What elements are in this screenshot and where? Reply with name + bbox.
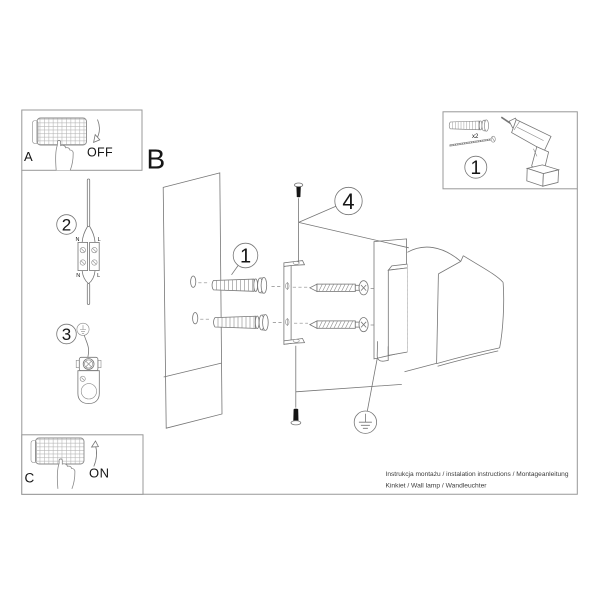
wire-label-l-top: L (98, 237, 101, 243)
switch-off-label: OFF (87, 146, 113, 160)
mounting-bracket (284, 261, 305, 345)
plug-quantity-label: x2 (472, 134, 479, 140)
panel-switch-off: OFF A (22, 110, 142, 170)
mounting-screw-icon (310, 318, 368, 332)
wire-label-n-top: N (76, 237, 80, 243)
wiring-step: 2 N L N L (57, 179, 101, 305)
wall-hole (191, 276, 196, 287)
tools-panel: x2 1 (443, 112, 577, 189)
diagram-canvas: OFF A ON C B 2 (0, 0, 600, 600)
mounting-screw-icon (310, 281, 368, 295)
power-cable-icon (82, 179, 95, 305)
instruction-sheet: OFF A ON C B 2 (0, 0, 600, 600)
wall-panel (163, 173, 222, 428)
ground-wire (84, 335, 88, 357)
grounding-step: 3 (57, 323, 101, 403)
fixing-screw-bottom (291, 409, 301, 425)
callout-wall-plug-number: 1 (240, 246, 251, 268)
panel-switch-on: ON C (22, 435, 143, 495)
leader-line-ground (367, 359, 377, 412)
callout-fixing: 4 (299, 187, 409, 248)
callout-grounding: 3 (57, 324, 77, 344)
footer-text: Instrukcja montażu / instalation instruc… (386, 471, 569, 490)
callout-wiring-number: 2 (62, 216, 71, 235)
wire-label-n-bottom: N (76, 273, 80, 279)
wire-label-l-bottom: L (97, 273, 100, 279)
callout-grounding-number: 3 (62, 325, 71, 344)
callout-tools-number: 1 (471, 158, 482, 179)
callout-wiring: 2 (57, 215, 77, 235)
wall-lamp-body (374, 239, 504, 372)
callout-tools: 1 (465, 156, 487, 179)
callout-fixing-number: 4 (342, 189, 354, 214)
lamp-channel (388, 264, 407, 355)
lamp-ground-clamp-icon (76, 357, 101, 403)
assembly-diagram: 1 (163, 173, 503, 434)
earth-badge-icon (354, 411, 376, 433)
rocker-switch-icon (31, 438, 84, 464)
terminal-block-icon (78, 242, 99, 270)
callout-wall-plug: 1 (232, 243, 258, 275)
earth-symbol-icon (77, 323, 89, 335)
panel-a-label: A (24, 149, 33, 164)
wall-plug-icon (214, 315, 269, 331)
fixing-screw-top (294, 183, 302, 197)
footer-line-1: Instrukcja montażu / instalation instruc… (386, 471, 569, 478)
switch-on-label: ON (89, 466, 110, 481)
wall-hole (193, 313, 198, 324)
lamp-shade (405, 247, 504, 372)
footer-line-2: Kinkiet / Wall lamp / Wandleuchter (386, 483, 488, 490)
section-b-label: B (147, 144, 166, 175)
panel-c-label: C (25, 471, 35, 486)
